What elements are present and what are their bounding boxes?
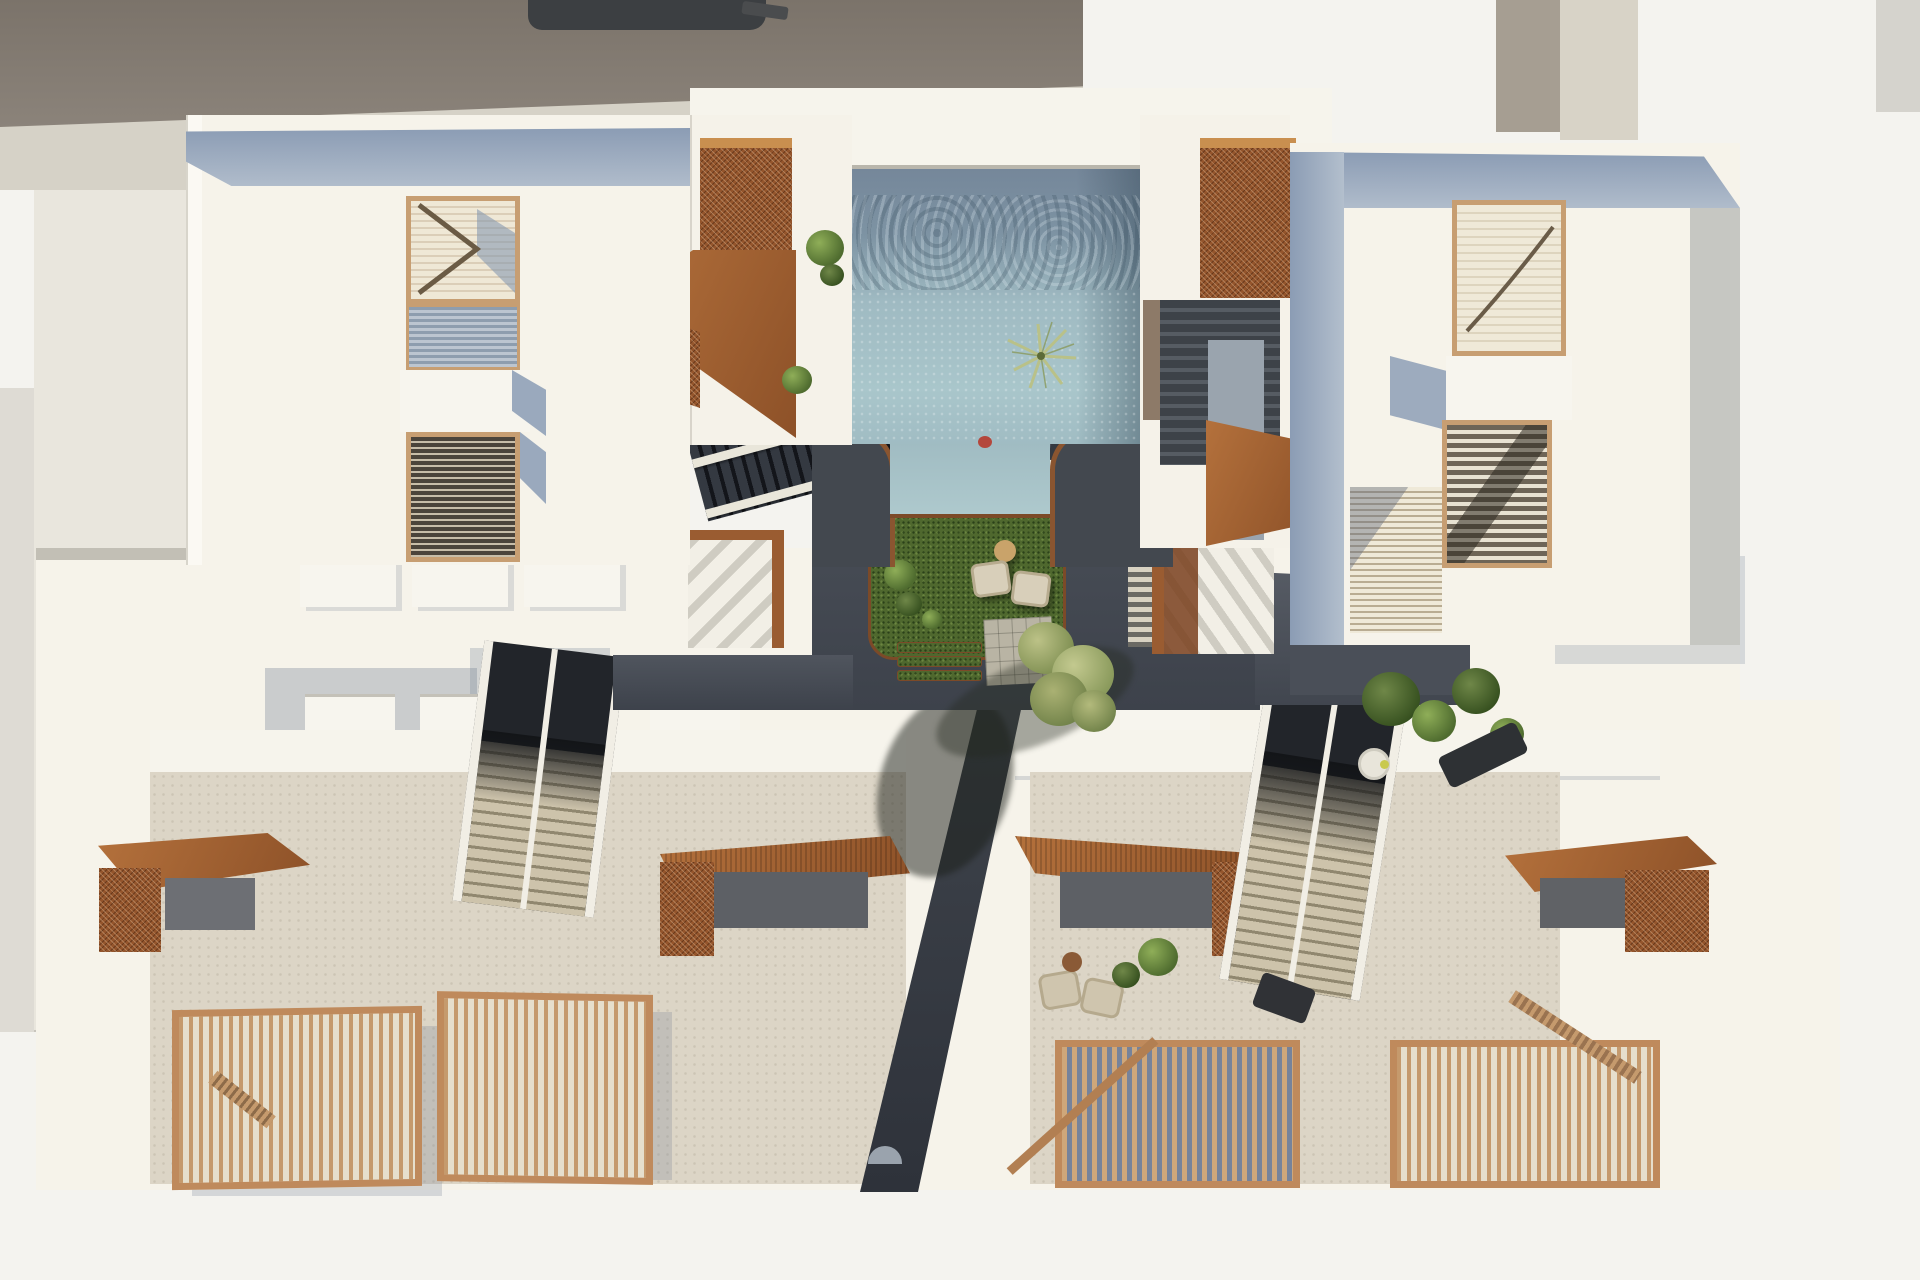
- canopy-left-interior: [700, 872, 868, 928]
- olive-tree-canopy: [1072, 690, 1116, 732]
- louver-lines-icon: [1457, 205, 1561, 351]
- lawn-plant: [922, 610, 942, 629]
- balcony-band: [400, 370, 530, 432]
- walkway-shrub: [1452, 668, 1500, 714]
- poolside-plant: [782, 366, 812, 394]
- neighbor-block-taupe: [1496, 0, 1560, 132]
- corten-mesh-balcony-right: [1200, 138, 1296, 298]
- lounge-chair: [970, 560, 1012, 599]
- building-right-east-face: [1690, 208, 1740, 645]
- timber-railing-left-b: [437, 991, 653, 1185]
- corten-mesh-far-right: [1625, 870, 1709, 952]
- corten-mesh-left-entry: [660, 862, 714, 956]
- lawn-plant: [896, 592, 922, 616]
- site-boundary-wall: [0, 388, 36, 1032]
- pool-ripples: [850, 195, 1140, 290]
- side-table-round: [994, 540, 1016, 562]
- roof-tab: [300, 560, 396, 607]
- courtyard-arm-left: [613, 655, 853, 710]
- balcony-band-right: [1446, 356, 1572, 420]
- spiral-plant: [1112, 962, 1140, 988]
- lawn-strip: [897, 642, 982, 653]
- corten-mesh-far-left: [99, 868, 161, 952]
- canopy-right-interior: [1060, 872, 1228, 928]
- timber-deck-right: [1055, 1040, 1300, 1188]
- louver-skylight-right-top: [1452, 200, 1566, 356]
- building-right-west-shadow: [1290, 152, 1344, 645]
- roof-tab: [412, 560, 508, 607]
- louver-skylight-dark: [406, 432, 520, 562]
- neighbor-edge-right: [1876, 0, 1920, 112]
- louver-skylight-chevron: [406, 196, 520, 304]
- pool-sparkle: [850, 290, 1140, 440]
- parapet-tab: [305, 694, 395, 735]
- terrace-shrub: [1138, 938, 1178, 976]
- side-table-round: [1062, 952, 1082, 972]
- timber-railing-left-a: [172, 1006, 422, 1190]
- canopy-far-right-interior: [1540, 878, 1632, 928]
- core-plant: [820, 264, 844, 286]
- roof-tab: [524, 560, 620, 607]
- pergola-stair-left: [688, 530, 784, 648]
- louver-panel-right-light: [1350, 487, 1442, 633]
- louver-skylight-right-dark: [1442, 420, 1552, 568]
- lemon-accent: [1380, 760, 1389, 769]
- aerial-render-canvas: [0, 0, 1920, 1280]
- armchair: [1037, 969, 1083, 1011]
- core-plant: [806, 230, 844, 266]
- canopy-far-left-interior: [165, 878, 255, 930]
- louver-skylight-blue: [406, 304, 520, 370]
- building-left-west-parapet: [186, 115, 202, 565]
- lounge-chair: [1010, 570, 1052, 608]
- walkway-shrub: [1412, 700, 1456, 742]
- neighbor-strip-beige: [1560, 0, 1638, 140]
- lawn-strip: [897, 670, 982, 681]
- rooftop-unit: [528, 0, 766, 30]
- red-flower: [978, 436, 992, 448]
- lawn-strip: [897, 656, 982, 667]
- palm-plant-icon: [1000, 318, 1082, 394]
- building-left-parapet-shadow: [186, 128, 690, 186]
- pool-shoulder-left: [812, 428, 895, 567]
- chevron-louver-icon: [411, 201, 515, 299]
